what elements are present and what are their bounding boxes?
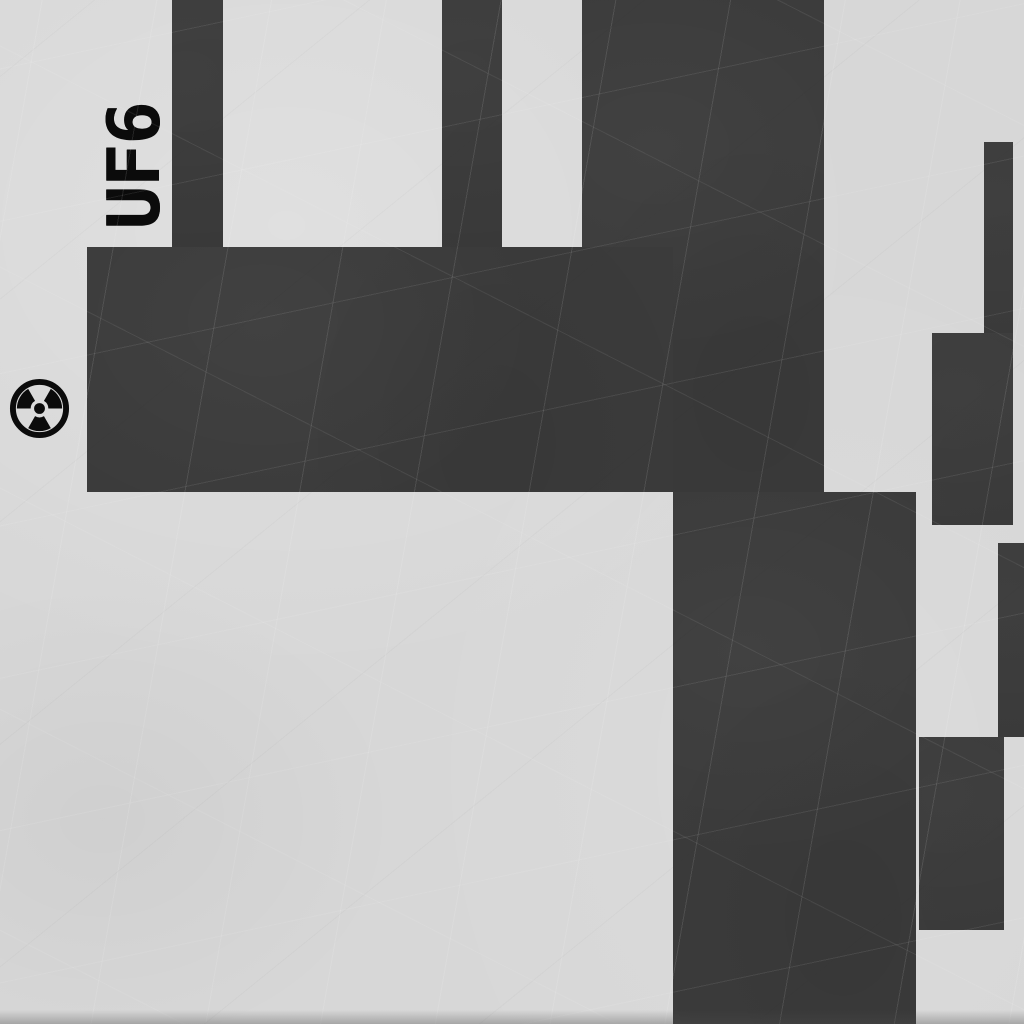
dark-block bbox=[932, 333, 1013, 525]
dark-block bbox=[984, 142, 1013, 333]
dark-block bbox=[87, 247, 673, 492]
dark-block bbox=[172, 0, 223, 247]
uf6-label: UF6 bbox=[94, 66, 174, 266]
game-world[interactable]: UF6 bbox=[0, 0, 1024, 1024]
dark-block bbox=[919, 737, 1004, 930]
dark-block bbox=[673, 492, 916, 1024]
dark-block bbox=[442, 0, 502, 247]
dark-block bbox=[998, 543, 1024, 737]
radiation-icon bbox=[8, 377, 71, 440]
